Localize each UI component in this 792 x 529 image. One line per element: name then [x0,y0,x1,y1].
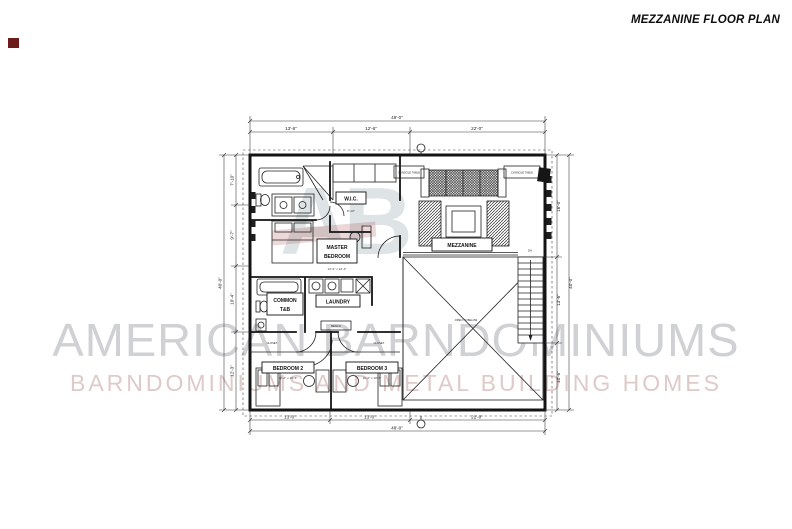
laundry-room: LAUNDRY BENCH [309,279,370,330]
master-entry-door-arc [378,236,400,258]
dim-bottom-overall: 48'-0" [391,426,403,431]
bedroom2-bed [256,368,280,406]
sofa [429,170,498,196]
dim-left-seg3: 10'-4" [230,293,235,305]
dim-top-seg1: 13'-6" [285,126,297,131]
wic-size: 8'-10" [347,209,355,213]
mezzanine-lounge: CONSOLE TABLE CONSOLE TABLE MEZZANINE [394,166,551,251]
dim-bottom-seg1: 13'-0" [284,415,296,420]
bedroom3-desk [333,370,346,392]
closet-right-label: CLOSET [374,341,385,345]
common-tb-label-2: T&B [280,307,291,313]
bedroom3-door-arc [338,332,358,352]
bedroom3: BEDROOM 3 11'-2" x 10'-6" [333,362,402,406]
desk [362,226,371,248]
bedroom2-label: BEDROOM 2 [273,366,304,372]
closets: CLOSET CLOSET [267,332,385,352]
master-bathroom [256,166,333,220]
dim-top-seg3: 22'-0" [471,126,483,131]
walk-in-closet: W.I.C. 8'-10" [330,164,396,216]
bedroom2-size: 11'-2" x 10'-6" [279,376,298,380]
dim-bottom-seg2: 13'-0" [364,415,376,420]
dim-left-seg2: 9'-7" [230,230,235,240]
dim-left-seg1: 7'-10" [230,174,235,186]
dim-right-seg2: 13'-6" [556,294,561,306]
washer [309,279,323,293]
dim-top-seg2: 12'-6" [365,126,377,131]
dim-left-overall: 40'-0" [218,277,223,289]
common-tb-label-1: COMMON [273,298,297,304]
sheet: MEZZANINE FLOOR PLAN AB AMERICAN BARNDOM… [0,0,792,529]
dim-top-overall: 48'-0" [391,115,403,120]
dim-right-seg1: 16'-0" [556,200,561,212]
section-marker [537,167,551,183]
dim-bottom-seg3: 22'-0" [471,415,483,420]
master-bedroom-label-2: BEDROOM [324,254,350,260]
bedroom2-chair [304,376,315,387]
master-bedroom-label-1: MASTER [326,245,348,251]
bedroom2: BEDROOM 2 11'-2" x 10'-6" [256,362,329,406]
laundry-sink [341,279,353,292]
dim-right-overall: 40'-0" [568,277,573,289]
dim-left-seg4: 12'-3" [230,365,235,377]
stairs-dn-label: DN [528,249,532,253]
common-sink [256,319,266,331]
bedroom3-bed [378,368,402,406]
closet-left-label: CLOSET [267,341,278,345]
laundry-label: LAUNDRY [326,300,351,306]
bedroom2-door-arc [296,332,316,352]
corner-shower [303,166,333,200]
sofa-armrest-right [498,169,506,197]
bedroom3-label: BEDROOM 3 [357,366,388,372]
closet-shelving [333,164,396,182]
bedroom3-chair [348,376,359,387]
open-to-below-label: OPEN TO BELOW [455,318,478,322]
console-table-right-label: CONSOLE TABLE [511,171,533,175]
console-table-left-label: CONSOLE TABLE [398,171,420,175]
dim-right-seg3: 10'-6" [556,371,561,383]
bench-label: BENCH [331,324,340,328]
master-bedroom: MASTER BEDROOM 13'-2" x 12'-4" [272,221,400,271]
bath-door-arc [316,206,330,220]
wic-label: W.I.C. [344,197,358,203]
master-bed [272,221,313,263]
floor-plan-drawing: W.I.C. 8'-10" MASTER BEDROOM 13'-2" x 12… [0,0,792,529]
bedroom2-desk [316,370,329,392]
dryer [325,279,339,293]
stairs: DN [518,249,543,344]
common-toilet [256,301,260,312]
sofa-armrest-left [421,169,429,197]
bedroom3-size: 11'-2" x 10'-6" [363,376,382,380]
master-bedroom-size: 13'-2" x 12'-4" [327,267,346,271]
mezzanine-label: MEZZANINE [447,243,477,249]
